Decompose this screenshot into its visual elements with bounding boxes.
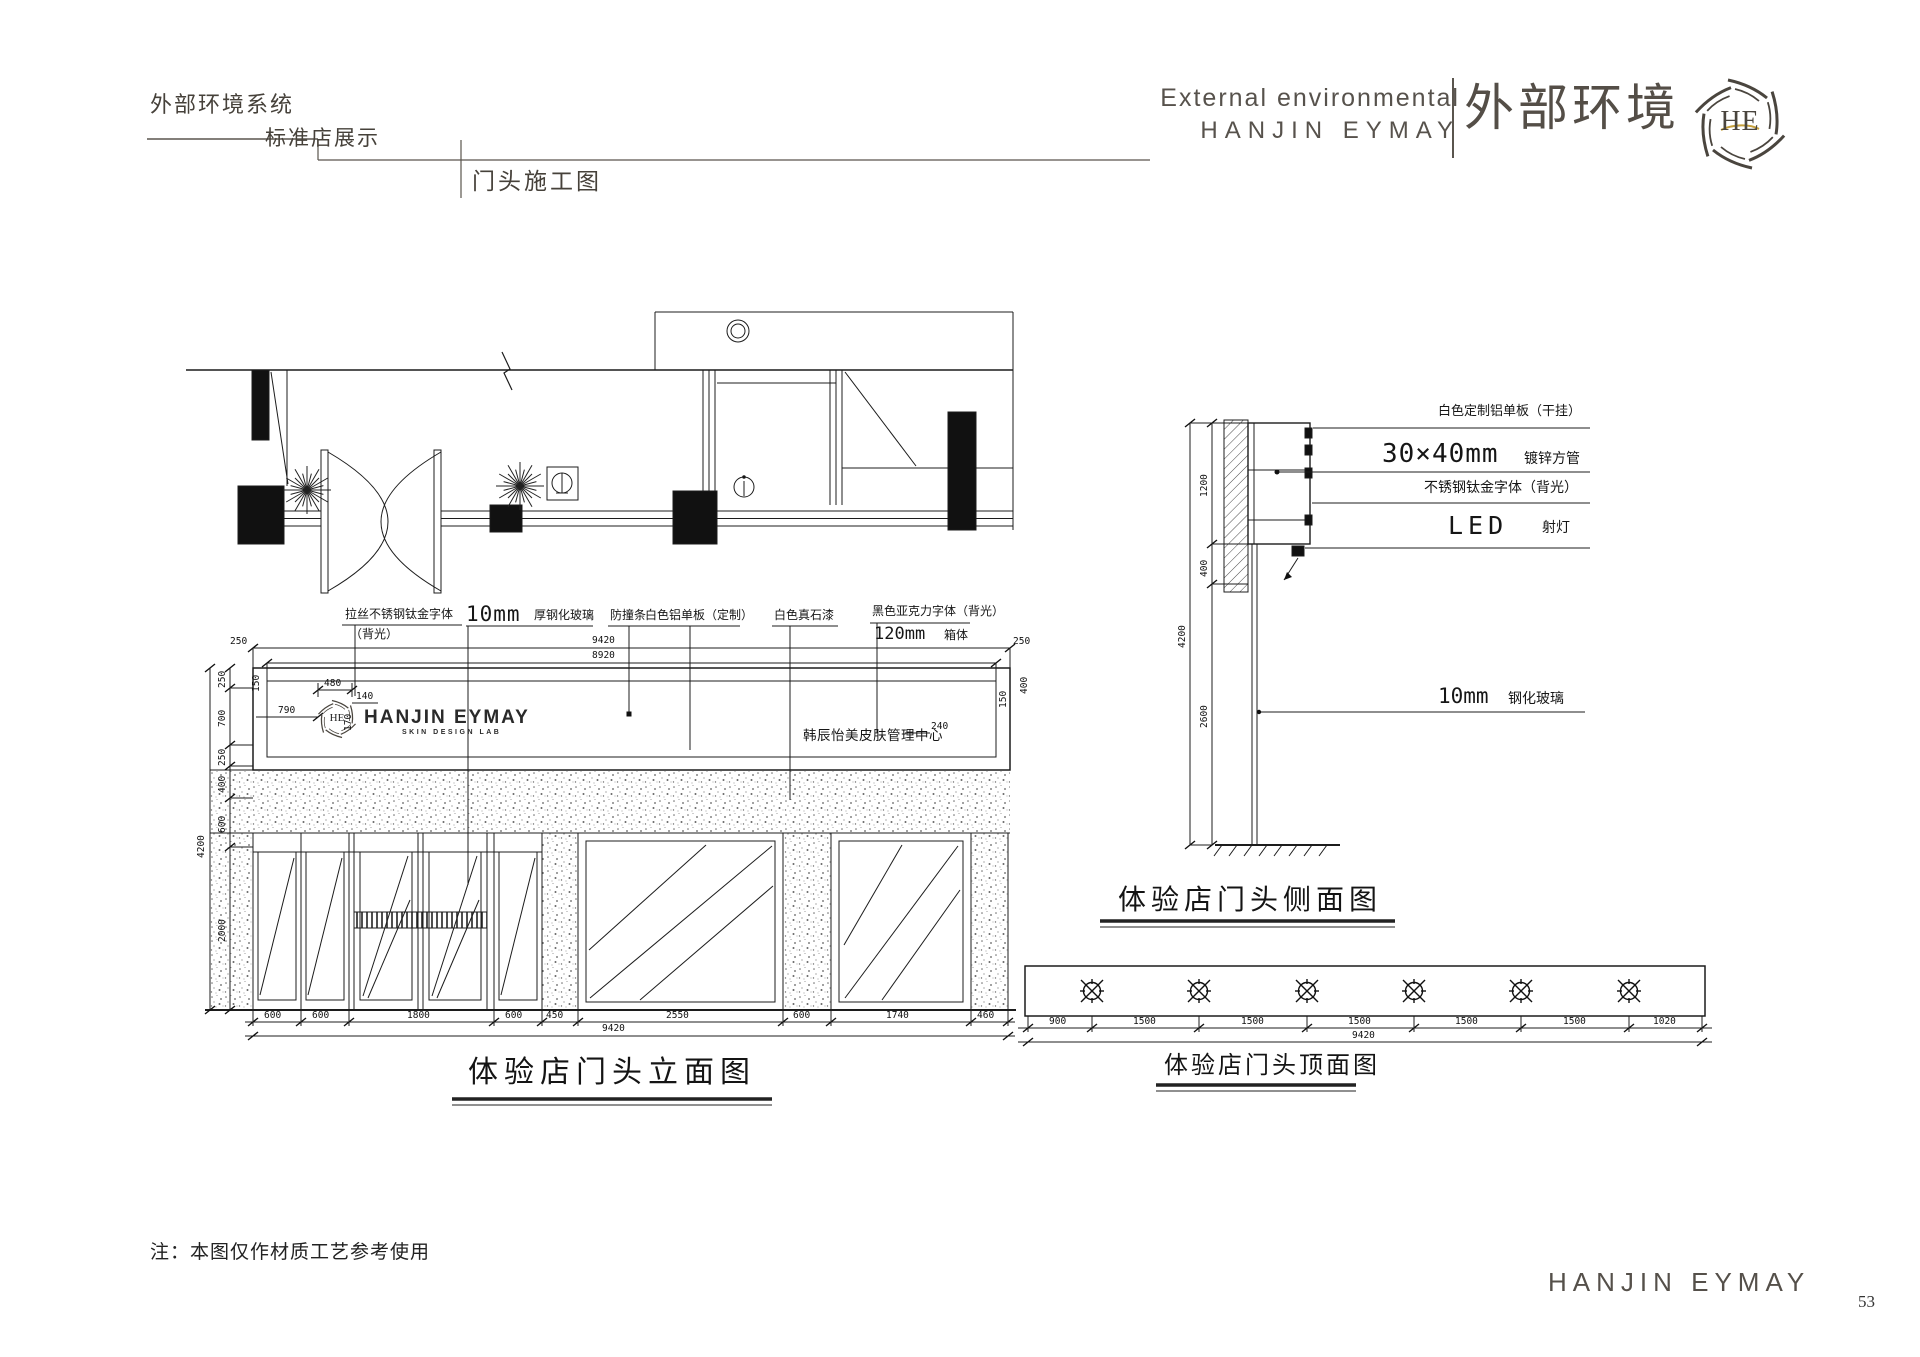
- dim-bottom-total: 9420: [602, 1024, 625, 1035]
- callout-stone-paint: 白色真石漆: [774, 609, 834, 623]
- dim-left-250a: 250: [218, 671, 229, 688]
- footer-note: 注：本图仅作材质工艺参考使用: [150, 1242, 430, 1264]
- callout-glass-size: 10mm: [466, 602, 521, 626]
- callout-led: LED: [1448, 512, 1508, 541]
- callout-alum-panel: 白色铝单板（定制）: [645, 609, 753, 623]
- dim-bc-2: 1800: [407, 1011, 430, 1022]
- lamp-icon: [1080, 979, 1104, 1003]
- callout-spotlight: 射灯: [1542, 519, 1570, 535]
- dim-150-right: 150: [999, 691, 1010, 708]
- dim-bc-7: 1740: [886, 1011, 909, 1022]
- dim-left-700: 700: [218, 710, 229, 727]
- dim-side-4200: 4200: [1178, 625, 1189, 648]
- lamp-icon: [1187, 979, 1211, 1003]
- sign-cn-text: 韩辰怡美皮肤管理中心: [803, 728, 943, 744]
- dim-side-400: 400: [1200, 560, 1211, 577]
- dim-left-2000: 2000: [218, 919, 229, 942]
- dim-tc-4: 1500: [1455, 1017, 1478, 1028]
- dim-bc-0: 600: [264, 1011, 281, 1022]
- dim-side-2600: 2600: [1200, 705, 1211, 728]
- drawing-linework: [0, 0, 1920, 1357]
- callout-tube-label: 镀锌方管: [1524, 450, 1580, 466]
- dim-bc-1: 600: [312, 1011, 329, 1022]
- dim-bc-8: 460: [977, 1011, 994, 1022]
- elevation-title: 体验店门头立面图: [468, 1056, 756, 1091]
- dim-left-400: 400: [218, 776, 229, 793]
- dim-250-left: 250: [230, 637, 247, 648]
- callout-steel-letters-side: 不锈钢钛金字体（背光）: [1424, 479, 1578, 495]
- top-view-title: 体验店门头顶面图: [1164, 1052, 1380, 1080]
- dim-side-1200: 1200: [1200, 474, 1211, 497]
- callout-glass-label: 厚钢化玻璃: [534, 609, 594, 623]
- callout-alum-panel-hung: 白色定制铝单板（干挂）: [1438, 404, 1581, 419]
- page-number: 53: [1858, 1292, 1875, 1312]
- side-view-title: 体验店门头侧面图: [1118, 884, 1382, 916]
- dim-400-right: 400: [1020, 677, 1031, 694]
- dim-480: 480: [324, 679, 341, 690]
- dim-height-4200: 4200: [197, 835, 208, 858]
- sign-sub-text: SKIN DESIGN LAB: [402, 729, 501, 737]
- dim-170: 170: [344, 714, 355, 731]
- dim-inner-8920: 8920: [592, 651, 615, 662]
- sign-brand-text: HANJIN EYMAY: [364, 707, 530, 729]
- dim-150-left: 150: [252, 675, 263, 692]
- dim-tc-1: 1500: [1133, 1017, 1156, 1028]
- plant-icon: [496, 462, 544, 510]
- dim-tc-3: 1500: [1348, 1017, 1371, 1028]
- dim-tc-6: 1020: [1653, 1017, 1676, 1028]
- dim-tc-0: 900: [1049, 1017, 1066, 1028]
- header-system-label: 外部环境系统: [150, 92, 294, 117]
- dim-bc-6: 600: [793, 1011, 810, 1022]
- lamp-icon: [1295, 979, 1319, 1003]
- dim-790: 790: [278, 706, 295, 717]
- callout-box-size: 120mm: [874, 625, 925, 645]
- callout-acrylic-letters: 黑色亚克力字体（背光）: [872, 605, 1004, 619]
- dim-tc-2: 1500: [1241, 1017, 1264, 1028]
- lamp-icon: [1617, 979, 1641, 1003]
- callout-tube-size: 30×40mm: [1382, 440, 1499, 470]
- dim-tc-5: 1500: [1563, 1017, 1586, 1028]
- plant-icon: [283, 466, 331, 514]
- dim-total-9420: 9420: [592, 636, 615, 647]
- drawing-sheet: { "header": { "system": "外部环境系统", "secti…: [0, 0, 1920, 1357]
- callout-box-label: 箱体: [944, 629, 968, 643]
- dim-140: 140: [356, 692, 373, 703]
- dim-left-600: 600: [218, 816, 229, 833]
- footer-brand: HANJIN EYMAY: [1548, 1268, 1810, 1298]
- header-logo-monogram: HE: [1714, 106, 1766, 138]
- callout-glass-size-side: 10mm: [1438, 684, 1489, 708]
- header-brand-en-small: External environmental: [1095, 84, 1460, 113]
- dim-left-250b: 250: [218, 749, 229, 766]
- header-section-label: 标准店展示: [265, 127, 380, 151]
- callout-glass-label-side: 钢化玻璃: [1508, 690, 1564, 706]
- dim-240: 240: [931, 722, 948, 733]
- plan-view: [186, 312, 1013, 593]
- dim-top-total: 9420: [1352, 1031, 1375, 1042]
- callout-steel-letters: 拉丝不锈钢钛金字体: [345, 608, 453, 622]
- lamp-icon: [1402, 979, 1426, 1003]
- dim-bc-5: 2550: [666, 1011, 689, 1022]
- lamp-icon: [1509, 979, 1533, 1003]
- dim-250-right: 250: [1013, 637, 1030, 648]
- dim-bc-4: 450: [546, 1011, 563, 1022]
- callout-bumper-strip: 防撞条: [610, 609, 646, 623]
- callout-steel-letters-2: （背光）: [350, 628, 398, 642]
- header-brand-en: HANJIN EYMAY: [1095, 117, 1460, 145]
- dim-bc-3: 600: [505, 1011, 522, 1022]
- header-sheet-label: 门头施工图: [472, 168, 602, 194]
- header-brand-cn: 外部环境: [1464, 80, 1680, 138]
